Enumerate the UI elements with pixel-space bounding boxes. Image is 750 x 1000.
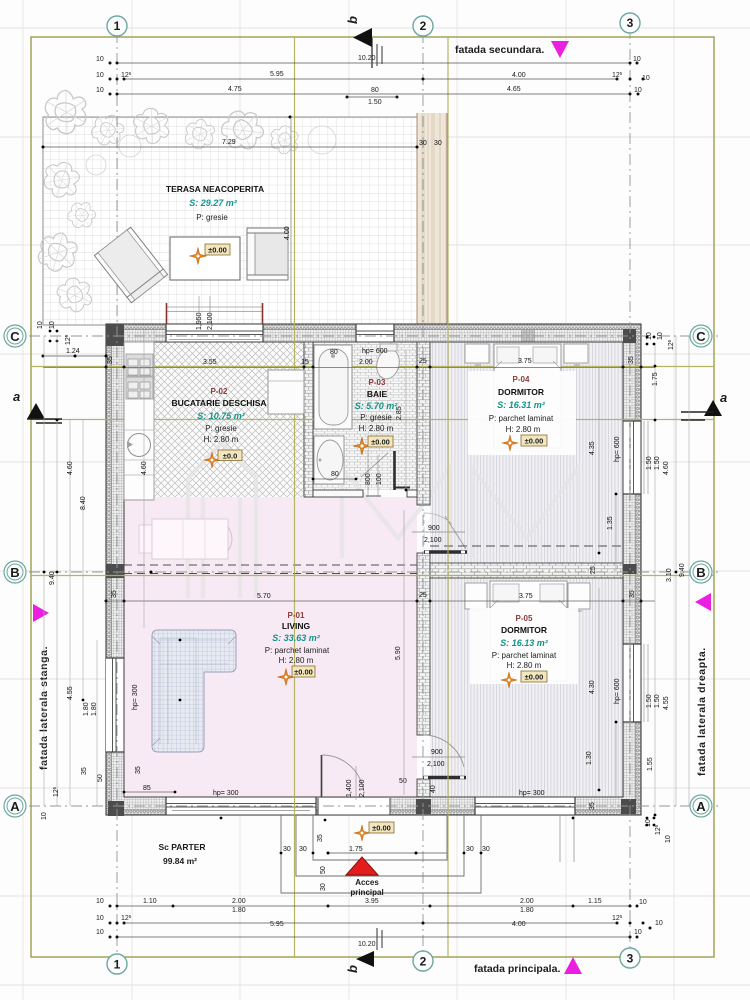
svg-text:C: C: [10, 329, 20, 344]
svg-text:fatada principala.: fatada principala.: [474, 963, 560, 975]
svg-text:99.84 m²: 99.84 m²: [163, 856, 197, 866]
svg-text:hp= 600: hp= 600: [362, 348, 388, 355]
svg-text:30: 30: [320, 883, 327, 891]
svg-text:hp= 300: hp= 300: [132, 684, 139, 710]
svg-text:1.50: 1.50: [654, 456, 661, 470]
svg-text:S: 33.63 m²: S: 33.63 m²: [272, 633, 321, 643]
svg-text:5.95: 5.95: [270, 71, 284, 78]
svg-text:H: 2.80 m: H: 2.80 m: [204, 435, 239, 444]
svg-text:TERASA NEACOPERITA: TERASA NEACOPERITA: [166, 184, 264, 194]
svg-text:2,100: 2,100: [359, 779, 366, 797]
svg-text:30: 30: [434, 140, 442, 147]
svg-text:900: 900: [431, 749, 443, 756]
svg-text:fatada secundara.: fatada secundara.: [455, 44, 544, 56]
svg-text:Sc PARTER: Sc PARTER: [158, 842, 205, 852]
svg-text:15: 15: [301, 359, 309, 366]
svg-text:a: a: [720, 390, 727, 405]
svg-text:5.95: 5.95: [270, 921, 284, 928]
svg-text:A: A: [10, 799, 20, 814]
svg-text:±0.00: ±0.00: [294, 668, 313, 677]
svg-text:3: 3: [627, 16, 634, 30]
svg-text:S: 5.70 m²: S: 5.70 m²: [355, 401, 399, 411]
svg-text:4.35: 4.35: [589, 441, 596, 455]
svg-text:4.00: 4.00: [284, 226, 291, 240]
svg-text:LIVING: LIVING: [282, 621, 311, 631]
svg-text:2.85: 2.85: [396, 406, 403, 420]
svg-text:S: 29.27 m²: S: 29.27 m²: [189, 198, 238, 208]
svg-text:P: gresie: P: gresie: [205, 424, 237, 433]
svg-text:C: C: [696, 329, 706, 344]
svg-text:5.70: 5.70: [257, 593, 271, 600]
svg-text:±0.0: ±0.0: [223, 452, 238, 461]
svg-text:10: 10: [96, 87, 104, 94]
svg-text:1.15: 1.15: [588, 898, 602, 905]
svg-text:1: 1: [114, 958, 121, 972]
svg-text:4.60: 4.60: [141, 461, 148, 475]
svg-text:2.00: 2.00: [232, 898, 246, 905]
svg-text:800: 800: [365, 473, 372, 485]
svg-text:2.00: 2.00: [520, 898, 534, 905]
svg-text:3.75: 3.75: [519, 593, 533, 600]
svg-text:hp= 600: hp= 600: [614, 436, 621, 462]
svg-text:hp= 300: hp= 300: [213, 790, 239, 797]
svg-text:fatada laterala dreapta.: fatada laterala dreapta.: [696, 647, 708, 776]
svg-text:±0.00: ±0.00: [372, 824, 391, 833]
svg-text:hp= 300: hp= 300: [519, 790, 545, 797]
svg-text:DORMITOR: DORMITOR: [498, 387, 544, 397]
svg-text:1.80: 1.80: [520, 907, 534, 914]
svg-text:1.50: 1.50: [646, 456, 653, 470]
svg-text:4.55: 4.55: [67, 686, 74, 700]
svg-text:10: 10: [96, 915, 104, 922]
svg-text:b: b: [345, 16, 360, 24]
svg-text:P-02: P-02: [211, 387, 228, 396]
svg-text:1.75: 1.75: [349, 846, 363, 853]
svg-text:4.60: 4.60: [67, 461, 74, 475]
svg-text:1.30: 1.30: [586, 751, 593, 765]
svg-text:2,100: 2,100: [424, 537, 442, 544]
svg-text:35: 35: [628, 356, 635, 364]
svg-text:2,100: 2,100: [427, 761, 445, 768]
svg-text:10: 10: [665, 835, 672, 843]
svg-text:7.29: 7.29: [222, 139, 236, 146]
svg-text:1.50: 1.50: [654, 694, 661, 708]
svg-text:1.80: 1.80: [232, 907, 246, 914]
svg-text:10: 10: [41, 812, 48, 820]
svg-text:9.40: 9.40: [49, 571, 56, 585]
svg-text:80: 80: [330, 349, 338, 356]
svg-text:40: 40: [430, 785, 437, 793]
svg-text:35: 35: [589, 802, 596, 810]
svg-text:25: 25: [419, 358, 427, 365]
svg-text:1.50: 1.50: [646, 694, 653, 708]
svg-text:10.20: 10.20: [358, 55, 376, 62]
svg-text:P-03: P-03: [369, 378, 386, 387]
svg-text:35: 35: [317, 834, 324, 842]
svg-text:3.75: 3.75: [518, 358, 532, 365]
svg-text:30: 30: [482, 846, 490, 853]
svg-text:25: 25: [590, 566, 597, 574]
svg-text:4.55: 4.55: [663, 696, 670, 710]
svg-text:85: 85: [143, 785, 151, 792]
svg-text:9.40: 9.40: [679, 563, 686, 577]
svg-text:S: 16.31 m²: S: 16.31 m²: [497, 400, 546, 410]
svg-text:a: a: [13, 389, 20, 404]
svg-text:1.10: 1.10: [143, 898, 157, 905]
svg-text:A: A: [696, 799, 706, 814]
svg-text:3.95: 3.95: [365, 898, 379, 905]
svg-text:35: 35: [629, 590, 636, 598]
svg-text:10: 10: [655, 920, 663, 927]
svg-text:P: parchet laminat: P: parchet laminat: [489, 414, 554, 423]
svg-text:35: 35: [81, 767, 88, 775]
svg-text:±0.00: ±0.00: [525, 437, 544, 446]
svg-text:10.20: 10.20: [358, 941, 376, 948]
svg-text:10: 10: [657, 332, 664, 340]
svg-text:H: 2.80 m: H: 2.80 m: [279, 656, 314, 665]
svg-text:3.55: 3.55: [203, 359, 217, 366]
svg-text:35: 35: [111, 590, 118, 598]
svg-text:10: 10: [96, 72, 104, 79]
svg-text:30: 30: [419, 140, 427, 147]
svg-text:35: 35: [135, 766, 142, 774]
svg-text:P-01: P-01: [288, 611, 305, 620]
svg-text:1.75: 1.75: [652, 372, 659, 386]
svg-text:S: 16.13 m²: S: 16.13 m²: [500, 638, 549, 648]
svg-text:P: parchet laminat: P: parchet laminat: [492, 651, 557, 660]
svg-text:900: 900: [428, 525, 440, 532]
svg-text:BUCATARIE DESCHISA: BUCATARIE DESCHISA: [171, 398, 266, 408]
svg-text:1.24: 1.24: [66, 348, 80, 355]
svg-text:4.00: 4.00: [512, 72, 526, 79]
svg-text:10: 10: [96, 929, 104, 936]
svg-text:1,950: 1,950: [196, 312, 203, 330]
svg-text:5.90: 5.90: [395, 646, 402, 660]
svg-text:B: B: [10, 565, 19, 580]
svg-text:80: 80: [331, 471, 339, 478]
svg-text:P-04: P-04: [513, 375, 530, 384]
svg-text:1.35: 1.35: [607, 516, 614, 530]
svg-text:3.10: 3.10: [666, 568, 673, 582]
svg-text:2: 2: [420, 955, 427, 969]
svg-text:10: 10: [96, 56, 104, 63]
svg-text:b: b: [345, 965, 360, 973]
svg-text:10: 10: [37, 321, 44, 329]
svg-text:50: 50: [399, 778, 407, 785]
svg-text:4.00: 4.00: [512, 921, 526, 928]
svg-text:4.75: 4.75: [228, 86, 242, 93]
svg-text:30: 30: [283, 846, 291, 853]
svg-text:25: 25: [419, 592, 427, 599]
svg-text:10: 10: [639, 899, 647, 906]
svg-text:50: 50: [97, 774, 104, 782]
svg-text:10: 10: [96, 898, 104, 905]
svg-text:100: 100: [376, 473, 383, 485]
svg-text:4.30: 4.30: [589, 680, 596, 694]
svg-text:4.60: 4.60: [663, 461, 670, 475]
svg-text:±0.00: ±0.00: [525, 673, 544, 682]
svg-text:±0.00: ±0.00: [371, 438, 390, 447]
svg-text:S: 10.75 m²: S: 10.75 m²: [197, 411, 246, 421]
svg-text:P-05: P-05: [516, 614, 533, 623]
svg-text:Acces: Acces: [355, 878, 379, 887]
svg-text:50: 50: [320, 866, 327, 874]
svg-text:2,100: 2,100: [207, 312, 214, 330]
svg-text:35: 35: [107, 356, 114, 364]
svg-text:4.65: 4.65: [507, 86, 521, 93]
svg-text:P: parchet laminat: P: parchet laminat: [265, 646, 330, 655]
svg-text:8.40: 8.40: [80, 496, 87, 510]
svg-text:1.50: 1.50: [368, 99, 382, 106]
svg-text:10: 10: [634, 929, 642, 936]
svg-text:B: B: [696, 565, 705, 580]
svg-text:principal: principal: [350, 888, 383, 897]
svg-text:3: 3: [627, 952, 634, 966]
svg-text:80: 80: [371, 87, 379, 94]
svg-text:2: 2: [420, 19, 427, 33]
svg-text:10: 10: [49, 321, 56, 329]
svg-text:P: gresie: P: gresie: [360, 413, 392, 422]
svg-text:30: 30: [299, 846, 307, 853]
svg-text:DORMITOR: DORMITOR: [501, 625, 547, 635]
svg-text:H: 2.80 m: H: 2.80 m: [507, 661, 542, 670]
svg-text:2.00: 2.00: [359, 359, 373, 366]
svg-text:H: 2.80 m: H: 2.80 m: [359, 424, 394, 433]
svg-text:±0.00: ±0.00: [208, 246, 227, 255]
svg-text:1,400: 1,400: [346, 779, 353, 797]
svg-text:hp= 600: hp= 600: [614, 678, 621, 704]
svg-text:H: 2.80 m: H: 2.80 m: [506, 425, 541, 434]
svg-text:P: gresie: P: gresie: [196, 213, 228, 222]
svg-text:BAIE: BAIE: [367, 389, 388, 399]
svg-text:1.80: 1.80: [91, 702, 98, 716]
svg-text:1.80: 1.80: [83, 702, 90, 716]
svg-text:1.55: 1.55: [647, 757, 654, 771]
svg-text:1: 1: [114, 19, 121, 33]
